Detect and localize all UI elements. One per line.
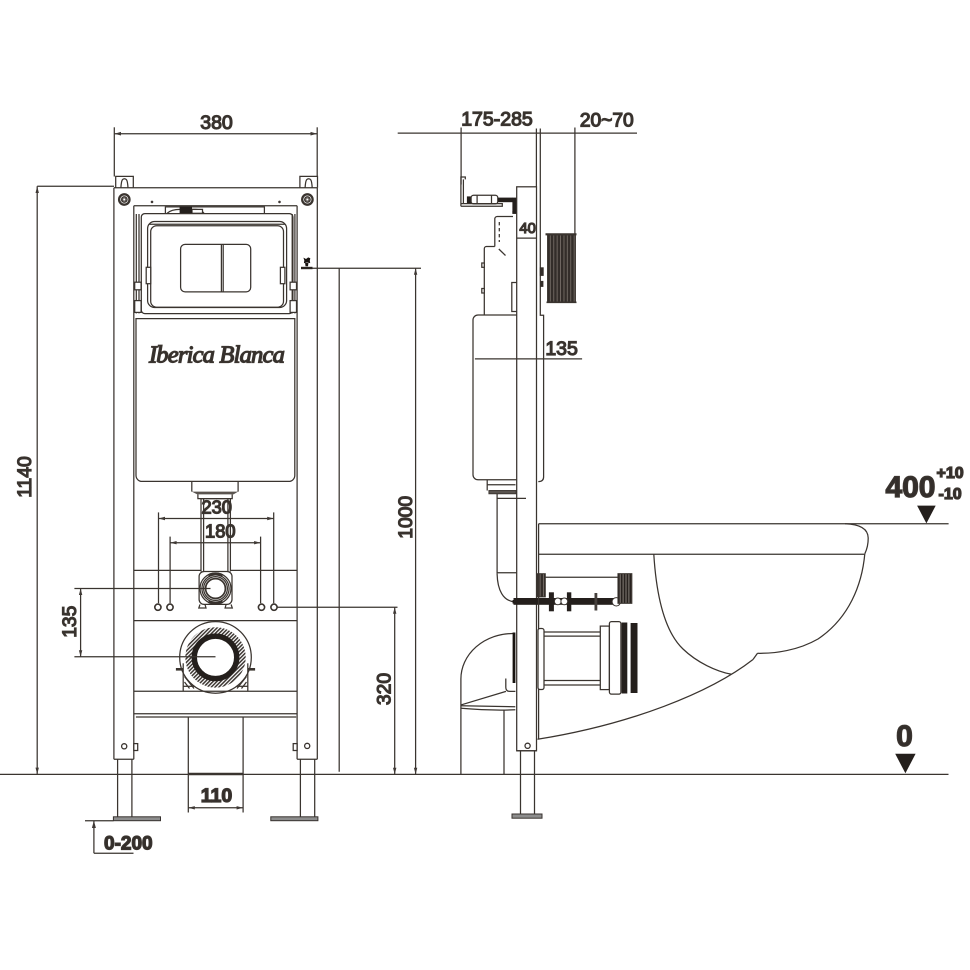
svg-text:400: 400 <box>885 471 935 504</box>
svg-text:1140: 1140 <box>15 456 36 497</box>
svg-text:135: 135 <box>60 606 81 638</box>
svg-text:+10: +10 <box>937 465 964 482</box>
svg-text:320: 320 <box>374 673 395 705</box>
svg-text:Iberica Blanca: Iberica Blanca <box>148 342 285 369</box>
svg-text:110: 110 <box>201 785 233 807</box>
svg-text:135: 135 <box>545 338 578 360</box>
svg-text:175-285: 175-285 <box>461 109 533 131</box>
svg-text:0: 0 <box>896 720 913 753</box>
svg-text:40: 40 <box>519 221 535 237</box>
svg-text:20~70: 20~70 <box>580 111 634 132</box>
svg-text:380: 380 <box>200 112 233 134</box>
svg-text:0-200: 0-200 <box>104 833 153 854</box>
svg-text:-10: -10 <box>939 486 962 503</box>
svg-text:230: 230 <box>201 496 232 517</box>
svg-text:1000: 1000 <box>396 496 417 539</box>
svg-text:180: 180 <box>205 521 236 542</box>
